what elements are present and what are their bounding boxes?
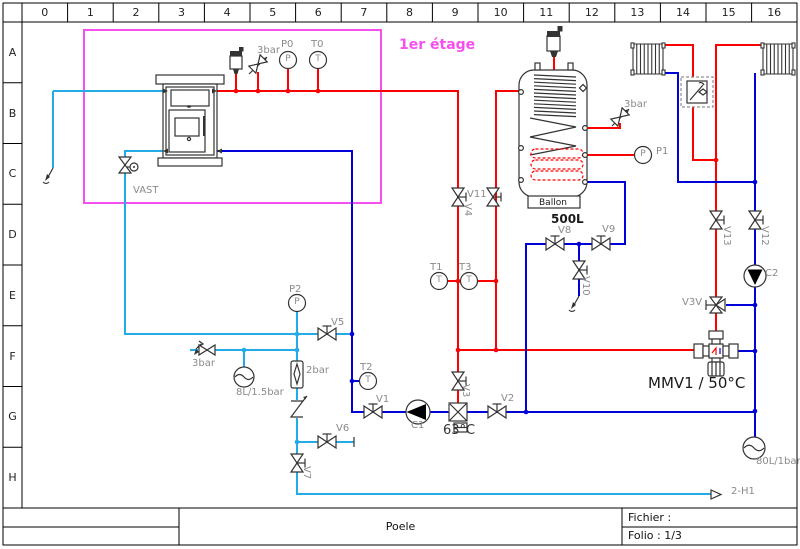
document-title: Poele (179, 508, 622, 545)
label-p2-glyph: P (294, 298, 299, 307)
label-v13: V13 (721, 226, 731, 246)
label-t0: T0 (311, 40, 323, 50)
label-t1-glyph: T (436, 276, 442, 285)
grid-row-D: D (3, 204, 22, 265)
valve-v3v (706, 297, 725, 313)
air-vent-stove (230, 47, 244, 74)
label-v8: V8 (558, 226, 571, 236)
drain-left (43, 168, 53, 184)
radiator-right (761, 43, 795, 75)
grid-col-9: 9 (432, 3, 478, 22)
label-t2-glyph: T (365, 376, 371, 385)
drain-v10 (569, 296, 579, 312)
label-t2: T2 (360, 363, 372, 373)
wood-stove (156, 75, 224, 166)
grid-row-G: G (3, 387, 22, 448)
label-outlet: 2-H1 (731, 487, 755, 497)
grid-col-3: 3 (159, 3, 205, 22)
grid-col-15: 15 (706, 3, 752, 22)
label-v3v: V3V (682, 298, 702, 308)
valve-v11 (487, 188, 501, 206)
file-label: Fichier : (628, 511, 671, 524)
label-v2: V2 (501, 394, 514, 404)
label-t0-glyph: T (315, 55, 321, 64)
grid-col-10: 10 (478, 3, 524, 22)
grid-row-H: H (3, 447, 22, 508)
label-zone: 1er étage (399, 38, 475, 52)
label-c1: C1 (411, 421, 424, 431)
label-v4: V4 (462, 203, 472, 216)
label-v5: V5 (331, 318, 344, 328)
valve-v8 (546, 236, 564, 250)
balancing-valve-box (681, 77, 713, 107)
grid-col-0: 0 (22, 3, 68, 22)
hydraulic-schematic-page: 012345678910111213141516 ABCDEFGH P0T03b… (0, 0, 800, 549)
grid-col-13: 13 (615, 3, 661, 22)
grid-col-4: 4 (204, 3, 250, 22)
relief-valve-stove-3bar (249, 55, 267, 74)
label-v12: V12 (759, 226, 769, 246)
grid-col-12: 12 (569, 3, 615, 22)
label-v6: V6 (336, 424, 349, 434)
pump-c2 (744, 265, 766, 287)
folio-label: Folio : 1/3 (628, 529, 682, 542)
label-v1: V1 (376, 395, 389, 405)
grid-row-B: B (3, 83, 22, 144)
label-relief-stove: 3bar (257, 46, 280, 56)
label-vessel-80l: 80L/1bar (756, 457, 800, 467)
label-reducer: 2bar (306, 366, 329, 376)
label-tank-volume: 500L (551, 213, 584, 225)
label-p0: P0 (281, 40, 293, 50)
grid-col-2: 2 (113, 3, 159, 22)
schematic-canvas (0, 0, 800, 549)
valve-v9 (592, 236, 610, 250)
grid-col-16: 16 (751, 3, 797, 22)
pressure-reducer-2bar (291, 361, 303, 388)
label-ballon: Ballon (539, 199, 567, 208)
label-v3: V3 (460, 384, 470, 397)
label-c2: C2 (765, 269, 778, 279)
label-v9: V9 (602, 225, 615, 235)
air-vent-tank (547, 26, 563, 57)
grid-row-E: E (3, 265, 22, 326)
grid-row-F: F (3, 326, 22, 387)
valve-v1 (364, 404, 382, 418)
grid-col-6: 6 (296, 3, 342, 22)
valve-v6 (318, 434, 336, 448)
grid-col-7: 7 (341, 3, 387, 22)
label-p1: P1 (656, 147, 668, 157)
grid-col-5: 5 (250, 3, 296, 22)
valve-v5 (318, 326, 336, 340)
label-t3: T3 (459, 263, 471, 273)
label-relief-cold: 3bar (192, 359, 215, 369)
label-p2: P2 (289, 285, 301, 295)
grid-col-14: 14 (660, 3, 706, 22)
label-p0-glyph: P (285, 55, 290, 64)
label-v10: V10 (580, 276, 590, 296)
label-t1: T1 (430, 263, 442, 273)
radiator-left (631, 43, 665, 75)
valve-vast (119, 157, 138, 173)
outlet-arrow-2h1 (711, 490, 721, 499)
label-v11: V11 (467, 190, 487, 200)
grid-row-A: A (3, 22, 22, 83)
grid-col-11: 11 (523, 3, 569, 22)
grid-col-8: 8 (387, 3, 433, 22)
label-vessel-8l: 8L/1.5bar (236, 388, 284, 398)
label-vast: VAST (133, 186, 159, 196)
buffer-tank (519, 63, 588, 208)
disconnector-symbol (291, 396, 307, 417)
label-relief-tank: 3bar (624, 100, 647, 110)
grid-col-1: 1 (68, 3, 114, 22)
expansion-vessel-8l (234, 367, 254, 387)
grid-row-C: C (3, 144, 22, 205)
valve-v2 (488, 404, 506, 418)
mixing-valve-mmv1 (694, 331, 738, 376)
relief-valve-cold-3bar (194, 341, 215, 355)
label-mmv: MMV1 / 50°C (648, 376, 745, 391)
label-v7: V7 (301, 466, 311, 479)
label-t3-glyph: T (466, 276, 472, 285)
label-temp-63: 63°C (443, 424, 475, 437)
label-p1-glyph: P (640, 150, 645, 159)
